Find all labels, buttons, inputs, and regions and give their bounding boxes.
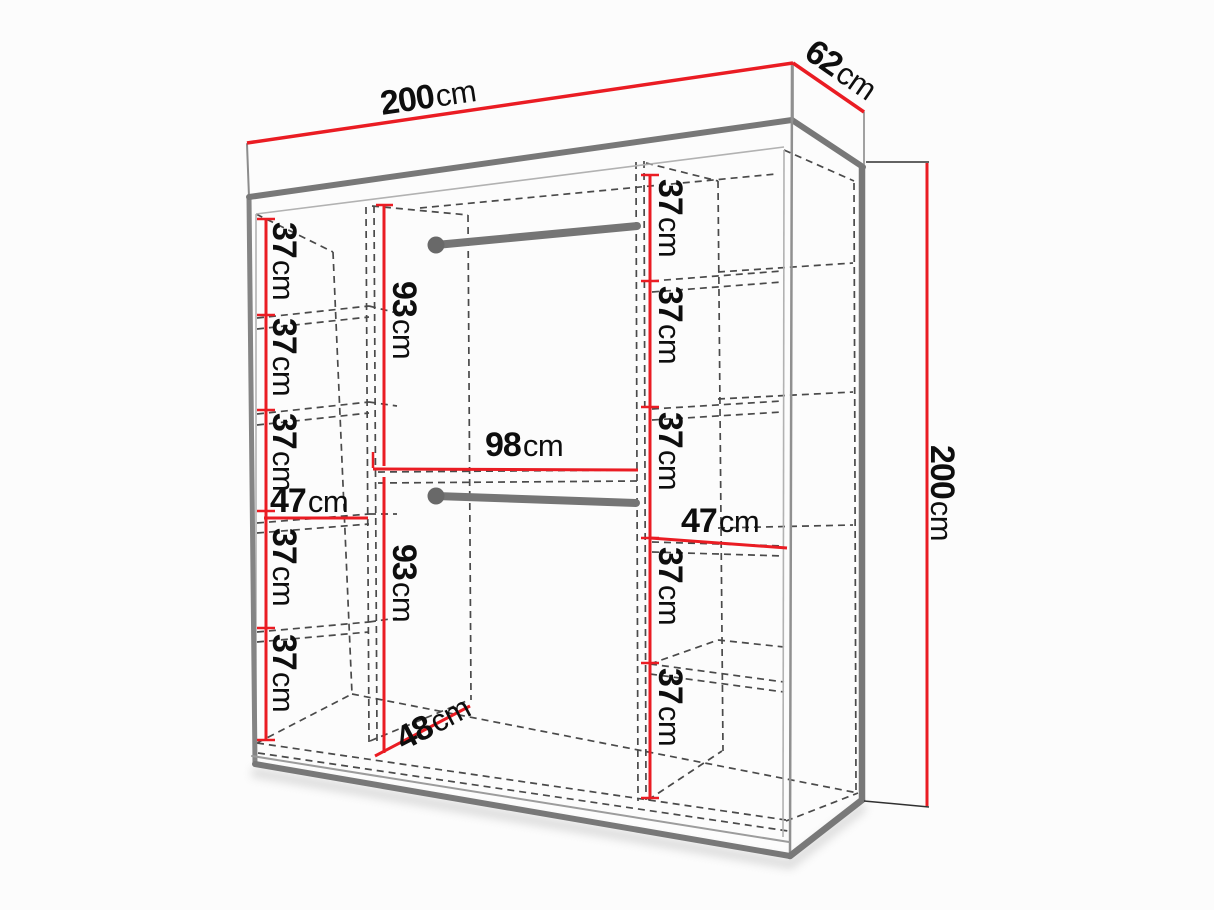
dim-value: 37 bbox=[653, 547, 687, 583]
dim-value: 47 bbox=[681, 504, 717, 538]
dim-label-right-section-2: 37cm bbox=[653, 286, 687, 364]
left-edge-top bbox=[247, 144, 249, 197]
ceiling-back-edge bbox=[420, 174, 776, 208]
dim-label-hanging-bottom: 93cm bbox=[387, 544, 421, 622]
dim-unit: cm bbox=[388, 319, 419, 359]
dim-unit: cm bbox=[926, 501, 957, 541]
dim-value: 37 bbox=[653, 412, 687, 448]
dim-label-middle-width: 98cm bbox=[485, 428, 563, 462]
plinth-bottom-edge bbox=[255, 764, 790, 856]
dim-value: 37 bbox=[653, 286, 687, 322]
divider-right-back bbox=[718, 181, 723, 751]
dim-label-left-section-4: 37cm bbox=[267, 528, 301, 606]
diagram-canvas bbox=[0, 0, 1214, 910]
divider-right-front-b bbox=[644, 161, 646, 800]
back-left-corner bbox=[333, 252, 352, 694]
dim-value: 93 bbox=[387, 544, 421, 580]
side-bottom-edge bbox=[790, 800, 862, 856]
dim-value: 37 bbox=[267, 222, 301, 258]
divider-left-front-b bbox=[374, 206, 377, 741]
dim-unit: cm bbox=[268, 672, 299, 712]
divider-left-front-a bbox=[366, 207, 369, 742]
dim-unit: cm bbox=[268, 260, 299, 300]
left-edge bbox=[249, 197, 255, 764]
back-right-corner bbox=[854, 183, 856, 790]
dim-unit: cm bbox=[654, 217, 685, 257]
dim-value: 200 bbox=[925, 445, 959, 499]
dim-label-right-section-5: 37cm bbox=[653, 668, 687, 746]
extension-lines bbox=[864, 162, 929, 807]
dim-value: 37 bbox=[267, 413, 301, 449]
dim-label-right-section-3: 37cm bbox=[653, 412, 687, 490]
dim-label-right-section-4: 37cm bbox=[653, 547, 687, 625]
wardrobe-dimension-diagram: 200cm 62cm 200cm 37cm 37cm 37cm 47cm 37c… bbox=[0, 0, 1214, 910]
dim-value: 37 bbox=[267, 318, 301, 354]
dim-label-left-section-2: 37cm bbox=[267, 318, 301, 396]
dim-label-hanging-top: 93cm bbox=[387, 281, 421, 359]
dim-unit: cm bbox=[388, 582, 419, 622]
dim-unit: cm bbox=[268, 566, 299, 606]
rod-bottom-end-cap bbox=[428, 488, 445, 505]
dim-unit: cm bbox=[433, 75, 477, 112]
crown-bottom-side bbox=[792, 120, 863, 167]
dim-label-right-width: 47cm bbox=[681, 504, 759, 538]
dim-value: 37 bbox=[653, 668, 687, 704]
hanging-rod-bottom bbox=[436, 496, 636, 503]
dim-value: 37 bbox=[653, 179, 687, 215]
plinth-top-edge bbox=[252, 756, 789, 842]
dim-label-right-section-1: 37cm bbox=[653, 179, 687, 257]
dim-value: 37 bbox=[267, 634, 301, 670]
dim-label-left-section-3: 37cm bbox=[267, 413, 301, 491]
dim-label-overall-height: 200cm bbox=[925, 445, 959, 541]
dim-unit: cm bbox=[654, 585, 685, 625]
dim-unit: cm bbox=[654, 324, 685, 364]
dim-value: 200 bbox=[378, 79, 436, 120]
dim-value: 37 bbox=[267, 528, 301, 564]
dim-unit: cm bbox=[719, 506, 759, 537]
dimension-lines bbox=[247, 63, 927, 806]
dim-value: 47 bbox=[270, 484, 306, 518]
dim-label-left-section-1: 37cm bbox=[267, 222, 301, 300]
dim-mid-width-line bbox=[373, 469, 638, 470]
dim-unit: cm bbox=[654, 706, 685, 746]
front-right-edge bbox=[790, 64, 792, 855]
dim-label-left-section-5: 37cm bbox=[267, 634, 301, 712]
dim-value: 98 bbox=[485, 428, 521, 462]
dim-unit: cm bbox=[523, 430, 563, 461]
height-ext-bottom bbox=[864, 801, 929, 807]
rod-top-end-cap bbox=[428, 237, 445, 254]
dim-unit: cm bbox=[308, 486, 348, 517]
dim-unit: cm bbox=[268, 356, 299, 396]
divider-left-back bbox=[468, 215, 471, 700]
hanging-rod-top bbox=[436, 226, 637, 245]
inner-right-edge bbox=[783, 150, 784, 837]
dim-value: 93 bbox=[387, 281, 421, 317]
dim-unit: cm bbox=[654, 450, 685, 490]
dim-label-left-width: 47cm bbox=[270, 484, 348, 518]
middle-shelf bbox=[378, 470, 637, 483]
